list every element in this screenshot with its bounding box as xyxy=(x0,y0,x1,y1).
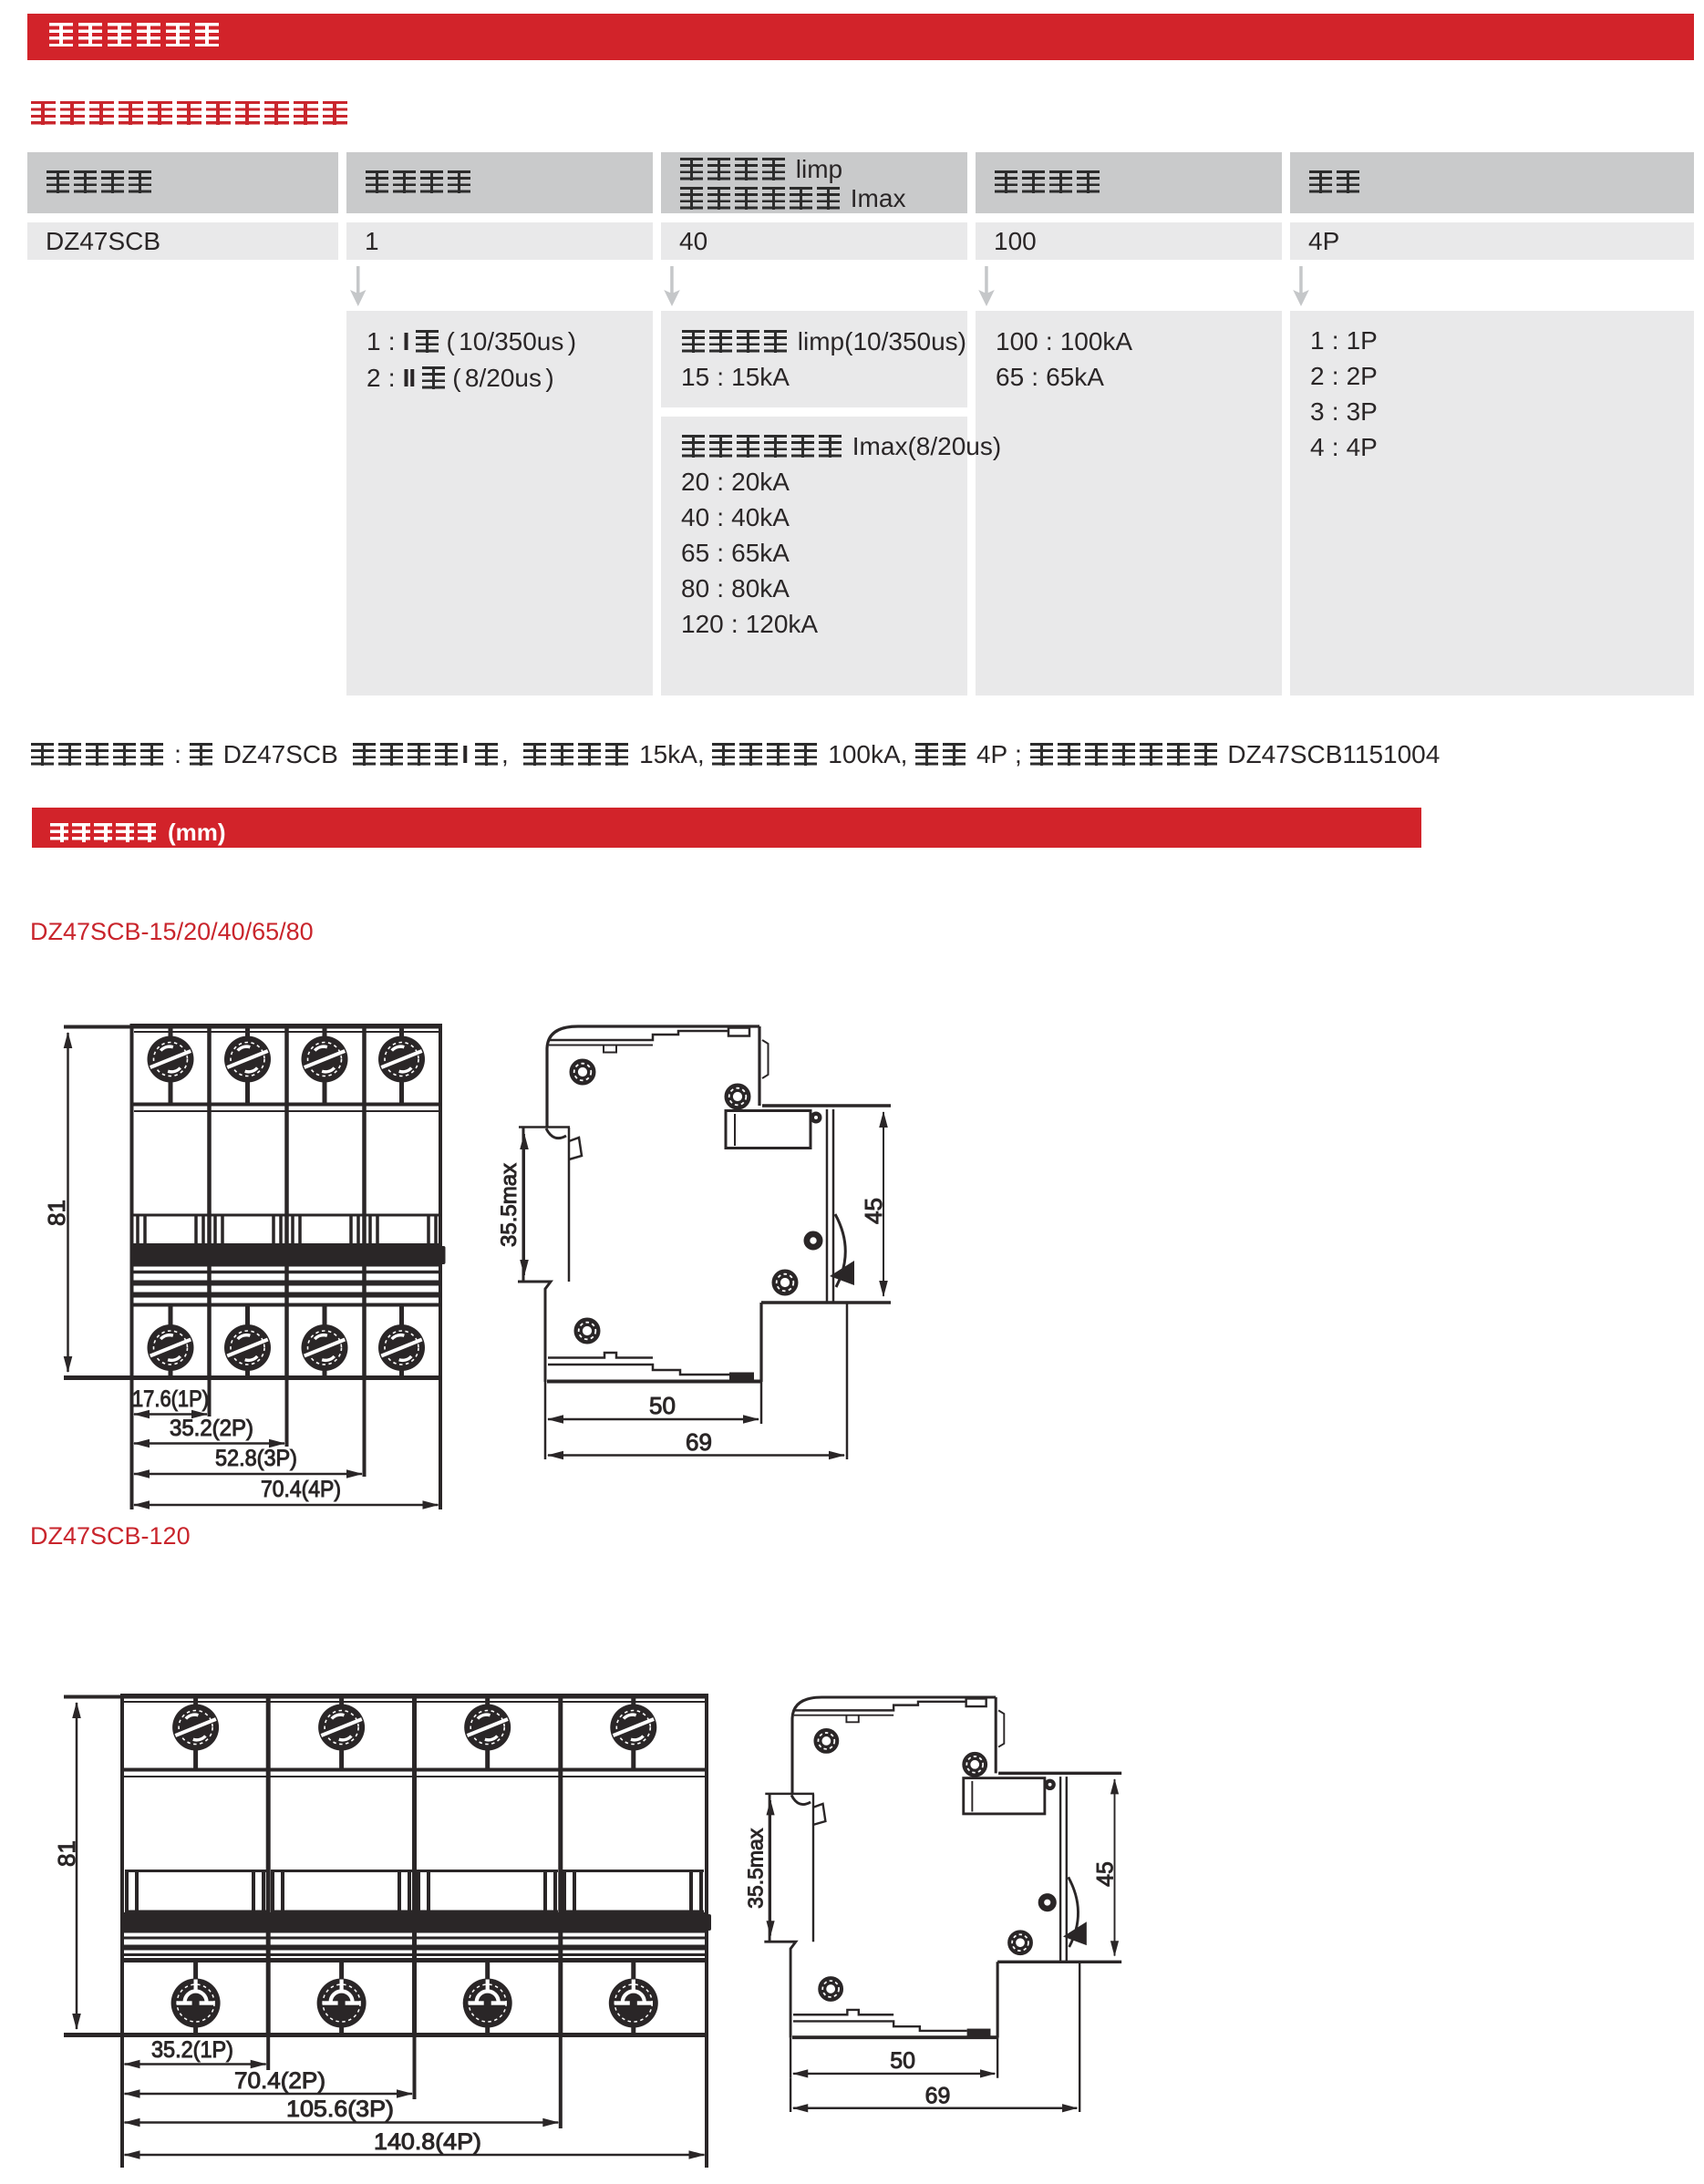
svg-text:45: 45 xyxy=(860,1198,887,1224)
svg-text:81: 81 xyxy=(53,1840,80,1867)
svg-text:105.6(3P): 105.6(3P) xyxy=(286,2096,394,2122)
svg-text:35.2(2P): 35.2(2P) xyxy=(170,1416,253,1441)
svg-text:70.4(4P): 70.4(4P) xyxy=(261,1477,341,1502)
svg-text:140.8(4P): 140.8(4P) xyxy=(374,2129,481,2155)
svg-text:69: 69 xyxy=(686,1428,712,1456)
svg-text:50: 50 xyxy=(649,1392,676,1419)
svg-text:17.6(1P): 17.6(1P) xyxy=(132,1386,209,1412)
svg-text:81: 81 xyxy=(43,1200,70,1226)
svg-text:70.4(2P): 70.4(2P) xyxy=(234,2068,325,2094)
svg-text:52.8(3P): 52.8(3P) xyxy=(215,1446,297,1471)
svg-text:35.5max: 35.5max xyxy=(497,1163,522,1247)
svg-text:35.2(1P): 35.2(1P) xyxy=(151,2037,233,2063)
